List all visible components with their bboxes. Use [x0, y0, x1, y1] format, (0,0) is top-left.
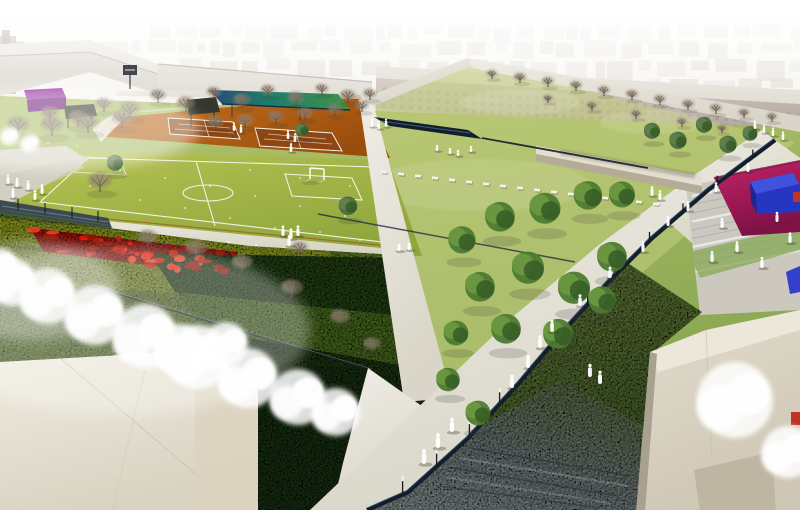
- pitch-dot: [319, 231, 321, 233]
- tree-canopy: [571, 81, 579, 87]
- tree-shadow: [338, 218, 362, 225]
- tree-shadow: [682, 109, 698, 113]
- person-shadow: [719, 227, 729, 230]
- person-head: [754, 121, 756, 123]
- tree-canopy: [186, 240, 200, 251]
- person-body: [735, 244, 738, 252]
- tree-shadow: [260, 96, 279, 101]
- pitch-dot: [184, 207, 186, 209]
- tree-shadow: [327, 115, 346, 120]
- person-shadow: [14, 186, 23, 189]
- blossom-cloud: [331, 395, 357, 421]
- tree-shadow: [570, 90, 586, 94]
- person-body: [457, 152, 460, 156]
- person-shadow: [434, 150, 442, 152]
- tree-canopy-dark: [598, 294, 615, 311]
- person-body: [422, 453, 426, 464]
- person-head: [294, 133, 296, 135]
- person-head: [290, 228, 293, 231]
- tree-canopy: [364, 89, 373, 96]
- pitch-dot: [349, 185, 351, 187]
- tree-canopy: [631, 110, 638, 115]
- person-body: [12, 191, 15, 198]
- person-body: [233, 125, 236, 131]
- person-body: [588, 367, 592, 377]
- person-shadow: [370, 126, 378, 128]
- person-body: [16, 180, 19, 187]
- person-shadow: [657, 199, 666, 202]
- person-head: [288, 235, 291, 238]
- person-head: [659, 190, 662, 193]
- person-body: [450, 421, 454, 432]
- person-body: [34, 193, 37, 200]
- person-body: [772, 130, 775, 136]
- pitch-dot: [299, 177, 301, 179]
- pitch-dot: [344, 215, 346, 217]
- tree-canopy-dark: [748, 130, 757, 139]
- person-body: [385, 121, 388, 127]
- tree-shadow: [435, 395, 465, 403]
- tree-canopy: [90, 173, 105, 184]
- person-shadow: [39, 193, 48, 196]
- person-head: [763, 125, 765, 127]
- person-shadow: [787, 242, 797, 245]
- tree-canopy: [655, 95, 663, 101]
- person-head: [34, 190, 37, 193]
- tree-shadow: [233, 107, 255, 113]
- person-body: [41, 187, 44, 194]
- tree-canopy-dark: [346, 202, 357, 213]
- person-shadow: [713, 191, 722, 194]
- person-head: [667, 216, 670, 219]
- pitch-dot: [299, 205, 301, 207]
- tree-canopy-dark: [619, 189, 635, 205]
- person-shadow: [455, 155, 463, 157]
- person-head: [436, 145, 438, 147]
- person-body: [287, 133, 290, 139]
- person-head: [642, 241, 645, 244]
- person-shadow: [585, 376, 597, 380]
- person-head: [16, 178, 18, 180]
- person-body: [281, 228, 284, 236]
- tree-shadow: [677, 126, 691, 130]
- person-body: [526, 358, 530, 368]
- tree-canopy: [234, 94, 245, 102]
- flower-blob: [87, 234, 98, 240]
- person-head: [736, 241, 739, 244]
- person-shadow: [286, 245, 296, 248]
- tree-canopy: [261, 85, 271, 92]
- flower-blob: [216, 250, 225, 256]
- pitch-dot: [209, 185, 211, 187]
- person-body: [641, 244, 644, 252]
- pitch-dot: [139, 199, 141, 201]
- tree-canopy: [543, 77, 551, 83]
- tree-shadow: [442, 349, 474, 358]
- tree-canopy: [316, 84, 325, 91]
- tree-shadow: [527, 228, 567, 239]
- person-shadow: [536, 347, 548, 351]
- person-head: [609, 267, 612, 270]
- park-rendering: [0, 0, 800, 510]
- tree-canopy-dark: [453, 327, 468, 342]
- tree-shadow: [107, 173, 128, 179]
- tree-canopy-dark: [541, 201, 560, 220]
- person-body: [240, 127, 243, 133]
- flower-blob: [50, 235, 59, 239]
- tree-canopy: [328, 104, 338, 111]
- person-shadow: [5, 183, 14, 186]
- person-body: [296, 228, 299, 236]
- person-shadow: [639, 251, 649, 254]
- person-head: [371, 119, 373, 121]
- pitch-dot: [254, 195, 256, 197]
- red-structure: [791, 412, 800, 425]
- pitch-dot: [359, 239, 361, 241]
- tree-canopy-dark: [502, 322, 520, 340]
- person-shadow: [232, 130, 240, 132]
- tree-shadow: [355, 111, 373, 116]
- person-head: [450, 418, 454, 422]
- person-shadow: [685, 210, 694, 213]
- tree-shadow: [572, 214, 609, 224]
- tree-canopy: [139, 230, 152, 240]
- person-shadow: [745, 171, 754, 174]
- tree-shadow: [509, 289, 551, 300]
- tree-canopy: [677, 118, 684, 123]
- person-body: [782, 134, 785, 140]
- tree-shadow: [542, 86, 558, 90]
- tree-canopy: [544, 95, 550, 100]
- lamp-head: [402, 475, 404, 481]
- person-shadow: [733, 251, 743, 254]
- person-body: [538, 339, 542, 348]
- tree-canopy: [627, 90, 635, 96]
- tree-shadow: [206, 98, 225, 103]
- person-body: [371, 121, 374, 127]
- lamp-post: [649, 228, 651, 240]
- person-shadow: [406, 249, 416, 252]
- tree-canopy: [331, 310, 344, 320]
- pitch-dot: [249, 169, 251, 171]
- person-body: [397, 247, 400, 252]
- lamp-head: [649, 228, 651, 232]
- person-shadow: [468, 151, 476, 153]
- tree-shadow: [587, 110, 601, 114]
- blossom-tree: [697, 362, 773, 438]
- person-body: [289, 231, 292, 239]
- tree-shadow: [483, 236, 521, 247]
- person-head: [282, 225, 285, 228]
- person-shadow: [762, 132, 770, 134]
- tree-shadow: [292, 254, 313, 260]
- tree-shadow: [644, 141, 665, 147]
- tree-canopy-dark: [475, 407, 490, 422]
- person-body: [436, 147, 439, 151]
- person-body: [578, 297, 582, 306]
- tree-canopy: [683, 100, 691, 106]
- person-shadow: [771, 135, 779, 137]
- person-shadow: [548, 331, 559, 334]
- tree-shadow: [631, 118, 645, 122]
- person-head: [408, 243, 411, 246]
- tree-shadow: [463, 306, 501, 317]
- person-head: [526, 355, 529, 358]
- person-head: [233, 123, 235, 125]
- person-body: [710, 254, 713, 262]
- tree-canopy-dark: [608, 250, 626, 268]
- person-shadow: [708, 261, 718, 264]
- tree-canopy: [238, 115, 248, 123]
- tree-canopy: [288, 92, 299, 100]
- tree-canopy: [711, 104, 719, 110]
- tree-canopy: [341, 90, 351, 98]
- person-shadow: [447, 153, 455, 155]
- person-shadow: [576, 305, 587, 308]
- tree-shadow: [696, 135, 717, 141]
- park-rendering-stage: [0, 0, 800, 510]
- person-body: [721, 220, 724, 228]
- tree-shadow: [710, 113, 726, 117]
- tree-shadow: [626, 99, 642, 103]
- person-head: [287, 130, 289, 132]
- lawn-light-patch: [460, 89, 580, 115]
- tree-shadow: [464, 429, 496, 438]
- tree-shadow: [586, 318, 621, 328]
- tree-canopy: [599, 86, 607, 92]
- person-head: [240, 125, 242, 127]
- tree-canopy: [515, 73, 523, 79]
- person-head: [538, 335, 541, 338]
- person-shadow: [10, 197, 19, 200]
- flower-blob: [116, 236, 121, 242]
- person-shadow: [285, 138, 293, 140]
- person-body: [788, 235, 791, 243]
- tree-canopy-dark: [445, 374, 459, 388]
- person-shadow: [649, 195, 658, 198]
- lamp-post: [402, 475, 404, 494]
- flower-blob: [26, 227, 40, 233]
- tree-canopy: [487, 70, 494, 75]
- person-shadow: [753, 128, 761, 130]
- person-shadow: [384, 126, 392, 128]
- flower-blob: [231, 251, 236, 255]
- person-shadow: [780, 139, 788, 141]
- tree-canopy: [718, 125, 724, 130]
- lamp-head: [499, 387, 501, 392]
- lamp-post: [436, 448, 438, 466]
- blossom-tree: [312, 388, 360, 436]
- person-head: [297, 225, 300, 228]
- person-body: [659, 193, 662, 200]
- tree-shadow: [607, 211, 641, 220]
- person-body: [294, 136, 297, 142]
- person-body: [754, 123, 757, 129]
- person-shadow: [25, 189, 34, 192]
- person-head: [579, 294, 582, 297]
- person-head: [398, 244, 401, 247]
- person-head: [436, 433, 440, 437]
- person-body: [470, 148, 473, 152]
- person-head: [457, 150, 459, 152]
- person-head: [290, 143, 292, 145]
- lamp-post: [682, 200, 684, 212]
- person-shadow: [288, 151, 296, 153]
- tree-shadow: [669, 152, 691, 158]
- person-head: [789, 232, 792, 235]
- person-body: [510, 378, 514, 388]
- person-head: [588, 364, 591, 367]
- tree-canopy: [178, 97, 190, 106]
- tree-shadow: [654, 104, 670, 108]
- tree-canopy-dark: [584, 189, 601, 206]
- person-shadow: [665, 225, 675, 228]
- tree-shadow: [329, 324, 355, 331]
- tree-canopy: [298, 108, 308, 115]
- person-shadow: [758, 267, 768, 270]
- tree-shadow: [446, 258, 481, 268]
- tree-shadow: [719, 156, 741, 162]
- person-head: [41, 184, 44, 187]
- person-body: [378, 123, 381, 129]
- tree-canopy-dark: [524, 260, 544, 280]
- person-head: [747, 163, 749, 165]
- tree-canopy: [356, 101, 365, 108]
- tree-canopy-dark: [702, 121, 712, 131]
- red-structure: [793, 192, 800, 202]
- person-head: [378, 121, 380, 123]
- person-head: [761, 257, 764, 260]
- person-body: [436, 437, 440, 448]
- person-body: [715, 185, 718, 192]
- tree-shadow: [297, 119, 316, 124]
- tree-canopy: [587, 102, 594, 107]
- tree-canopy-dark: [676, 136, 687, 147]
- person-head: [422, 449, 426, 453]
- tree-shadow: [544, 102, 557, 106]
- tree-shadow: [514, 82, 530, 86]
- person-shadow: [606, 277, 617, 280]
- pitch-dot: [89, 185, 91, 187]
- person-body: [598, 374, 602, 384]
- person-body: [290, 145, 293, 152]
- person-body: [287, 238, 290, 246]
- person-shadow: [292, 141, 300, 143]
- goal-shadow: [302, 181, 320, 185]
- tree-canopy-dark: [496, 210, 514, 228]
- tree-shadow: [555, 309, 597, 320]
- person-head: [687, 201, 690, 204]
- person-body: [776, 214, 779, 222]
- person-shadow: [239, 132, 247, 134]
- person-head: [449, 148, 451, 150]
- person-body: [27, 183, 30, 190]
- flower-blob: [46, 231, 59, 235]
- blossom-cloud: [727, 373, 769, 415]
- lamp-head: [716, 172, 718, 175]
- person-shadow: [377, 128, 385, 130]
- person-head: [651, 186, 654, 189]
- tree-canopy: [364, 338, 375, 346]
- tree-shadow: [363, 351, 385, 357]
- tree-canopy: [767, 113, 774, 118]
- tree-shadow: [87, 190, 117, 198]
- tree-canopy-dark: [300, 127, 308, 135]
- tree-canopy-dark: [726, 140, 737, 151]
- person-shadow: [32, 199, 41, 202]
- person-head: [715, 182, 718, 185]
- tree-shadow: [541, 353, 579, 364]
- person-body: [608, 270, 611, 278]
- tree-shadow: [718, 132, 731, 136]
- person-head: [12, 188, 15, 191]
- person-body: [407, 246, 410, 251]
- tree-canopy: [208, 116, 219, 124]
- person-body: [747, 165, 750, 172]
- lamp-post: [716, 172, 718, 183]
- tree-shadow: [487, 78, 501, 82]
- person-shadow: [295, 235, 305, 238]
- person-body: [550, 323, 554, 332]
- tree-canopy-dark: [476, 280, 494, 298]
- tree-canopy: [739, 109, 746, 114]
- tree-shadow: [742, 143, 761, 148]
- person-head: [721, 218, 724, 221]
- person-body: [449, 150, 452, 154]
- pitch-dot: [164, 177, 166, 179]
- person-body: [667, 218, 670, 226]
- person-head: [385, 119, 387, 121]
- person-body: [760, 260, 763, 268]
- tree-shadow: [268, 123, 289, 129]
- tree-canopy-dark: [458, 234, 475, 251]
- person-body: [7, 177, 10, 184]
- tree-canopy: [207, 87, 217, 94]
- person-head: [7, 175, 9, 177]
- person-head: [782, 131, 784, 133]
- person-head: [598, 371, 601, 374]
- person-shadow: [395, 250, 405, 253]
- pitch-dot: [274, 227, 276, 229]
- person-body: [651, 189, 654, 196]
- tree-canopy: [269, 111, 279, 119]
- person-shadow: [774, 221, 783, 224]
- tree-canopy-dark: [554, 327, 572, 345]
- person-body: [763, 127, 766, 133]
- person-head: [510, 375, 513, 378]
- lamp-post: [499, 387, 501, 404]
- flower-blob: [96, 239, 101, 245]
- tree-shadow: [207, 129, 229, 135]
- tree-shadow: [739, 117, 753, 121]
- tree-shadow: [767, 121, 781, 125]
- person-body: [687, 204, 690, 211]
- tree-shadow: [598, 95, 614, 99]
- flower-blob: [128, 242, 132, 245]
- person-head: [772, 127, 774, 129]
- tree-shadow: [315, 94, 333, 99]
- person-head: [470, 146, 472, 148]
- tree-canopy-dark: [650, 127, 660, 137]
- person-head: [776, 212, 779, 215]
- person-head: [550, 320, 553, 323]
- tree-shadow: [489, 348, 527, 359]
- person-head: [711, 251, 714, 254]
- goal-crossbar: [310, 168, 324, 169]
- pitch-dot: [229, 217, 231, 219]
- lamp-head: [682, 200, 684, 204]
- person-head: [27, 180, 29, 182]
